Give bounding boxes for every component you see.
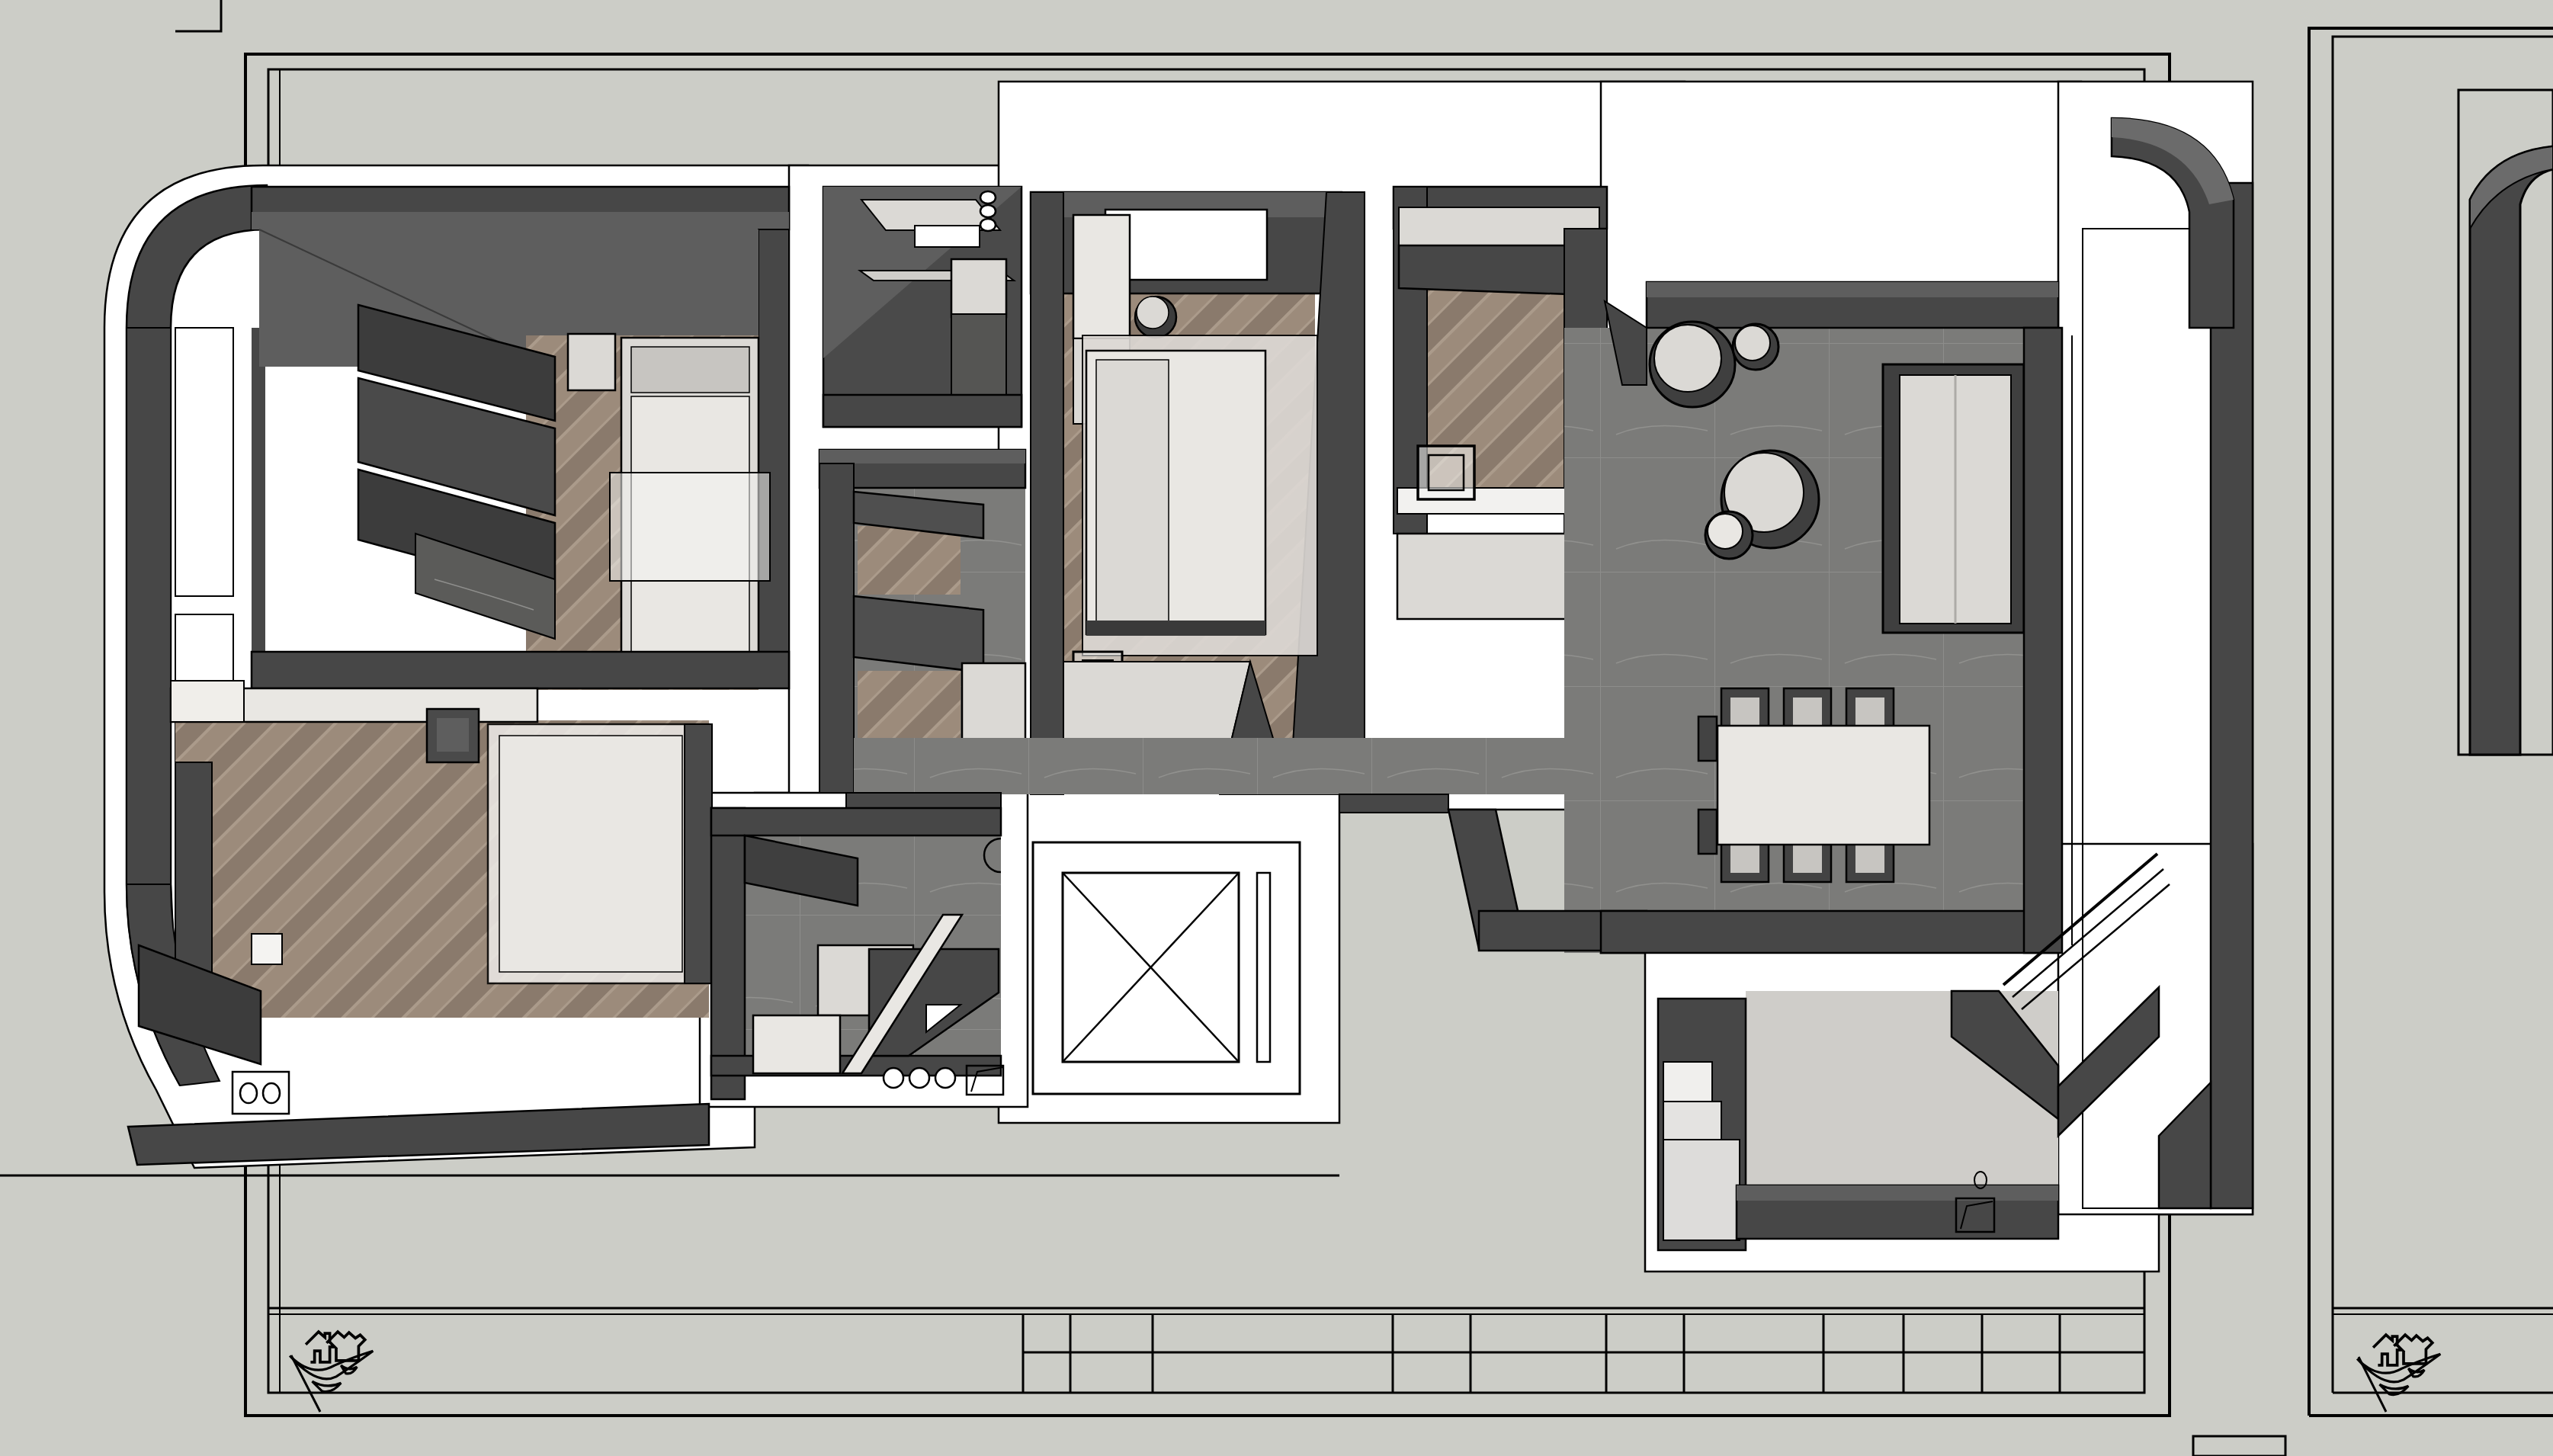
elevator-shaft: [1033, 842, 1300, 1094]
bedroom1-bed: [610, 338, 770, 671]
bedroom3-desk-drawers: [171, 681, 244, 722]
bedroom1-doorway-wood: [858, 526, 961, 595]
bedroom2-pouf: [1135, 297, 1176, 338]
bedroom1-bottom-wall: [252, 652, 789, 688]
kitchen-tall-cabinet: [1658, 999, 1746, 1250]
bedroom2-bed: [1086, 351, 1265, 636]
bed-pillow: [631, 347, 749, 393]
study-glass-cube: [1418, 446, 1474, 499]
elevator-hall: [1033, 842, 1300, 1094]
stair-room: [711, 808, 1003, 1099]
dining-table: [1718, 726, 1929, 845]
living-bottom-wall: [1601, 911, 2058, 953]
bedroom2-wardrobe: [1073, 215, 1130, 338]
stair-room-circles: [884, 1068, 955, 1088]
floor-plan-screenshot: [0, 0, 2553, 1456]
corridor-wall-right: [1339, 794, 1448, 813]
bedroom-2: [1031, 192, 1365, 794]
stair-step-lower: [753, 1015, 840, 1073]
washing-machine: [951, 259, 1006, 317]
bed-glass-canopy: [610, 473, 770, 581]
sofa: [1883, 364, 2024, 633]
bedroom1-nightstand: [568, 334, 615, 390]
hook-circle-triplet: [980, 191, 996, 231]
plan-canvas: [0, 0, 2553, 1456]
bed-footboard: [685, 724, 712, 983]
bedroom3-cube-stool: [252, 934, 282, 964]
bedroom2-left-wall: [1031, 192, 1063, 794]
bedroom3-bed: [488, 724, 712, 983]
lower-sheet-corner-mark: [2193, 1436, 2285, 1456]
drain-circle-pair: [233, 1072, 289, 1114]
bedroom1-right-wall: [759, 229, 789, 687]
balcony-outer-wall: [2211, 183, 2253, 1208]
window-wall: [2024, 328, 2062, 953]
utility-room: [823, 187, 1022, 427]
study-sideboard: [1397, 534, 1572, 619]
